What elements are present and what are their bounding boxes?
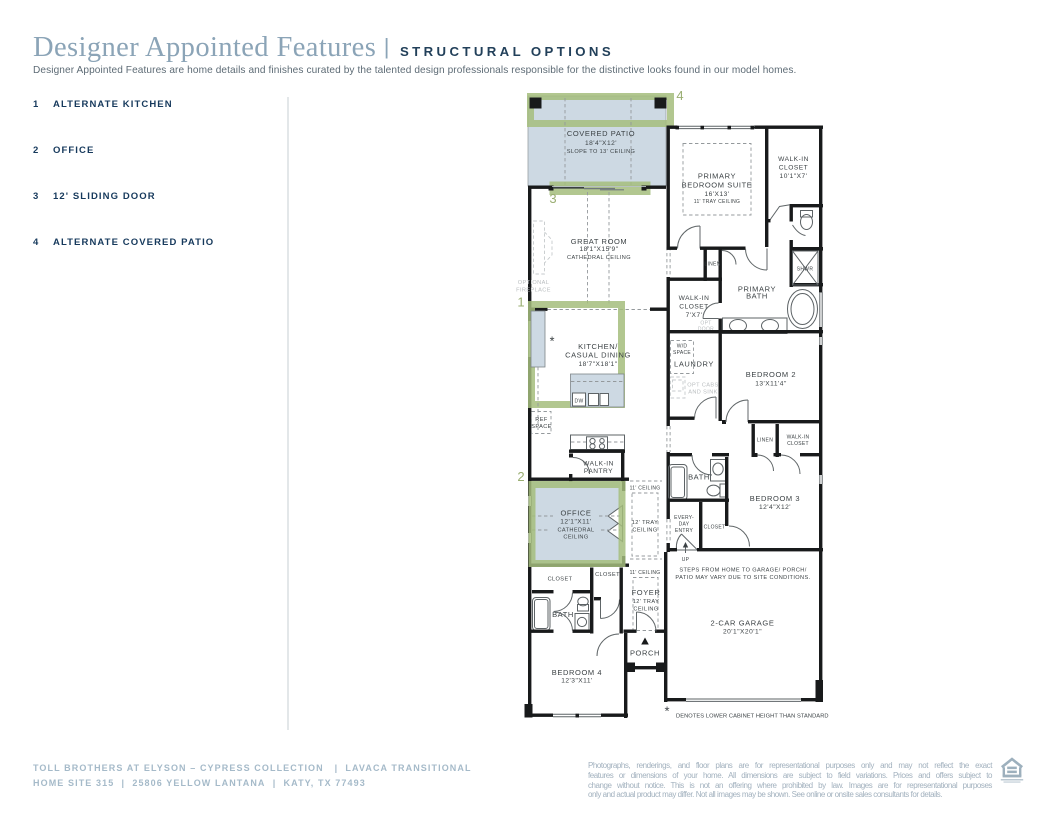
svg-text:AND SINK: AND SINK — [688, 390, 718, 396]
svg-text:2: 2 — [517, 469, 524, 484]
svg-text:4: 4 — [676, 88, 683, 103]
svg-text:7'X7': 7'X7' — [686, 312, 703, 319]
svg-text:12'4"X12': 12'4"X12' — [759, 504, 791, 511]
svg-text:LINEN: LINEN — [704, 262, 720, 268]
svg-text:SHWR: SHWR — [797, 267, 814, 273]
svg-text:WALK-IN: WALK-IN — [787, 435, 810, 441]
svg-text:18'4"X12': 18'4"X12' — [585, 140, 617, 147]
svg-text:LINEN: LINEN — [757, 437, 773, 443]
svg-text:DW: DW — [575, 399, 584, 405]
svg-text:BEDROOM 2: BEDROOM 2 — [746, 370, 796, 379]
svg-text:18'7"X18'1": 18'7"X18'1" — [578, 361, 617, 368]
svg-text:OPT CABS: OPT CABS — [687, 383, 718, 389]
svg-text:DAY: DAY — [679, 522, 690, 528]
svg-text:12'1"X11': 12'1"X11' — [560, 519, 592, 526]
svg-text:CLOSET: CLOSET — [787, 441, 809, 447]
svg-text:20'1"X20'1": 20'1"X20'1" — [723, 629, 762, 636]
svg-text:PORCH: PORCH — [630, 648, 660, 657]
svg-text:BATH: BATH — [746, 292, 768, 301]
svg-text:LAUNDRY: LAUNDRY — [674, 360, 714, 369]
svg-text:CEILING: CEILING — [632, 528, 657, 534]
svg-text:BEDROOM 3: BEDROOM 3 — [750, 494, 800, 503]
svg-text:DENOTES LOWER CABINET HEIGHT T: DENOTES LOWER CABINET HEIGHT THAN STANDA… — [676, 714, 829, 720]
svg-text:GREAT ROOM: GREAT ROOM — [571, 237, 628, 246]
svg-text:STEPS FROM HOME TO GARAGE/ POR: STEPS FROM HOME TO GARAGE/ PORCH/ — [679, 568, 806, 574]
svg-text:3: 3 — [549, 191, 556, 206]
svg-text:OFFICE: OFFICE — [560, 509, 591, 518]
svg-text:16'X13': 16'X13' — [704, 191, 729, 198]
svg-text:13'X11'4": 13'X11'4" — [755, 381, 787, 388]
svg-text:BEDROOM 4: BEDROOM 4 — [552, 668, 602, 677]
svg-text:PRIMARY: PRIMARY — [698, 172, 736, 181]
svg-text:EVERY-: EVERY- — [674, 515, 694, 521]
svg-text:WALK-IN: WALK-IN — [679, 295, 710, 302]
svg-text:BATH: BATH — [688, 473, 710, 482]
svg-text:CLOSET: CLOSET — [595, 572, 620, 578]
svg-text:OPTIONAL: OPTIONAL — [518, 280, 550, 286]
svg-text:12' TRAY: 12' TRAY — [632, 520, 658, 526]
svg-text:12'3"X11': 12'3"X11' — [561, 678, 593, 685]
svg-text:FOYER: FOYER — [632, 588, 661, 597]
svg-text:SPACE: SPACE — [673, 350, 691, 356]
svg-text:*: * — [664, 704, 669, 719]
svg-text:CLOSET: CLOSET — [704, 525, 726, 531]
svg-text:11' TRAY CEILING: 11' TRAY CEILING — [694, 199, 741, 205]
svg-text:2-CAR GARAGE: 2-CAR GARAGE — [711, 619, 775, 628]
svg-text:CASUAL DINING: CASUAL DINING — [565, 351, 631, 360]
svg-text:CATHEDRAL CEILING: CATHEDRAL CEILING — [567, 255, 631, 261]
svg-text:ENTRY: ENTRY — [675, 528, 694, 534]
svg-text:*: * — [550, 335, 555, 349]
svg-text:18'1"X15'9": 18'1"X15'9" — [579, 246, 618, 253]
svg-text:CLOSET: CLOSET — [779, 165, 808, 172]
svg-text:WALK-IN: WALK-IN — [583, 461, 614, 468]
svg-text:10'1"X7': 10'1"X7' — [780, 173, 808, 180]
svg-text:1: 1 — [517, 295, 524, 310]
svg-text:CATHEDRAL: CATHEDRAL — [557, 528, 594, 534]
svg-text:WALK-IN: WALK-IN — [778, 156, 809, 163]
svg-text:COVERED PATIO: COVERED PATIO — [567, 129, 635, 138]
svg-text:PANTRY: PANTRY — [584, 468, 613, 475]
svg-text:REF: REF — [535, 417, 548, 423]
svg-text:11' CEILING: 11' CEILING — [630, 486, 661, 492]
svg-text:12' TRAY: 12' TRAY — [633, 599, 659, 605]
svg-text:FIREPLACE: FIREPLACE — [516, 288, 551, 294]
svg-text:SLOPE TO 13' CEILING: SLOPE TO 13' CEILING — [567, 149, 636, 155]
svg-text:PATIO MAY VARY DUE TO SITE CON: PATIO MAY VARY DUE TO SITE CONDITIONS. — [675, 575, 810, 581]
svg-text:BEDROOM SUITE: BEDROOM SUITE — [682, 181, 753, 190]
svg-text:11' CEILING: 11' CEILING — [630, 570, 661, 576]
svg-text:CEILING: CEILING — [563, 535, 588, 541]
svg-text:W/D: W/D — [677, 344, 688, 350]
svg-text:UP: UP — [682, 557, 690, 563]
svg-text:SPACE: SPACE — [531, 424, 552, 430]
svg-text:CLOSET: CLOSET — [679, 304, 708, 311]
svg-text:CLOSET: CLOSET — [548, 577, 573, 583]
